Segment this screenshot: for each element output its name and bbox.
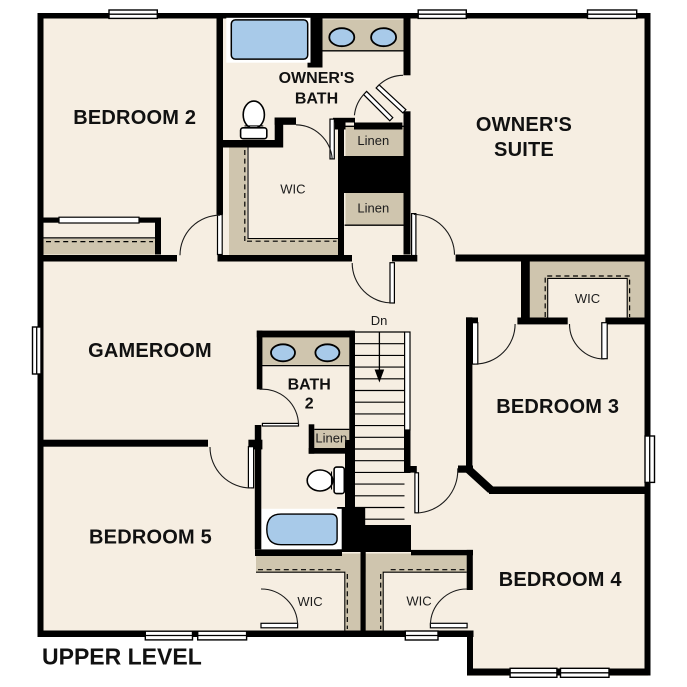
svg-text:OWNER'S: OWNER'S	[476, 114, 572, 136]
svg-text:SUITE: SUITE	[494, 139, 554, 161]
svg-text:OWNER'S: OWNER'S	[279, 70, 355, 87]
svg-text:Linen: Linen	[315, 430, 347, 445]
svg-text:BEDROOM 3: BEDROOM 3	[496, 396, 619, 418]
svg-text:BEDROOM 5: BEDROOM 5	[89, 527, 212, 549]
svg-text:BATH: BATH	[295, 90, 338, 107]
svg-text:Linen: Linen	[357, 200, 389, 215]
svg-text:BATH: BATH	[288, 376, 331, 393]
svg-text:WIC: WIC	[280, 181, 305, 196]
svg-text:BEDROOM 4: BEDROOM 4	[499, 569, 623, 591]
svg-text:GAMEROOM: GAMEROOM	[88, 340, 212, 362]
svg-text:Linen: Linen	[357, 133, 389, 148]
svg-text:Dn: Dn	[371, 313, 388, 328]
svg-text:BEDROOM 2: BEDROOM 2	[73, 107, 196, 129]
svg-text:WIC: WIC	[297, 594, 322, 609]
svg-text:UPPER LEVEL: UPPER LEVEL	[42, 644, 202, 670]
svg-text:WIC: WIC	[406, 594, 431, 609]
svg-text:WIC: WIC	[575, 291, 600, 306]
svg-text:2: 2	[305, 396, 314, 413]
